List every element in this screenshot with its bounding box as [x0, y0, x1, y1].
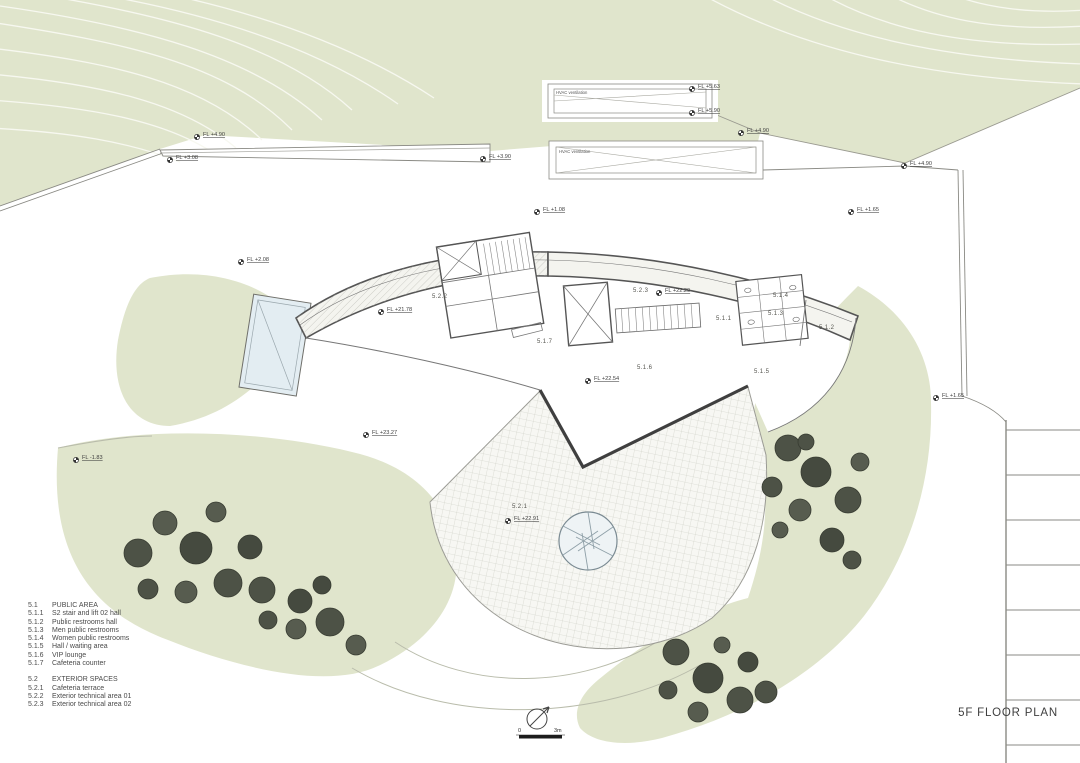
- legend-item: 5.2.2Exterior technical area 01: [28, 693, 131, 701]
- svg-text:FL +3.08: FL +3.08: [176, 155, 198, 161]
- svg-text:FL +2.08: FL +2.08: [247, 257, 269, 263]
- north-arrow-icon: [527, 707, 549, 729]
- scale-bar: 0 3m: [516, 728, 565, 739]
- room-label: 5.1.6: [637, 365, 653, 371]
- level-marker: FL +23.27: [363, 430, 397, 438]
- legend-item: 5.1.7Cafeteria counter: [28, 660, 131, 668]
- svg-text:FL +4.90: FL +4.90: [203, 132, 225, 138]
- svg-text:FL +21.78: FL +21.78: [387, 307, 412, 313]
- svg-text:FL -1.83: FL -1.83: [82, 455, 103, 461]
- legend-item: 5.2.3Exterior technical area 02: [28, 701, 131, 709]
- svg-text:FL +4.90: FL +4.90: [747, 128, 769, 134]
- svg-text:FL +23.27: FL +23.27: [372, 430, 397, 436]
- room-label: 5.2.1: [512, 504, 528, 510]
- legend-item: 5.1.5Hall / waiting area: [28, 643, 131, 651]
- svg-text:FL +3.90: FL +3.90: [489, 154, 511, 160]
- stair-core-block: [436, 232, 543, 338]
- hvac-box-2: HVAC ventilation: [549, 141, 763, 179]
- room-label: 5.1.3: [768, 311, 784, 317]
- hvac-label-1: HVAC ventilation: [556, 90, 588, 95]
- svg-text:FL +1.08: FL +1.08: [543, 207, 565, 213]
- svg-text:FL +22.29: FL +22.29: [665, 288, 690, 294]
- floor-plan-drawing: HVAC ventilation HVAC ventilation: [0, 0, 1080, 763]
- legend-item: 5.2.1Cafeteria terrace: [28, 685, 131, 693]
- east-lift-block: [563, 282, 612, 346]
- ramp-wedge: [160, 144, 490, 162]
- legend-item: 5.1.6VIP lounge: [28, 652, 131, 660]
- svg-text:FL +5.63: FL +5.63: [698, 84, 720, 90]
- scale-zero-label: 0: [518, 728, 521, 734]
- level-marker: FL +2.08: [238, 257, 269, 265]
- level-marker: FL +1.65: [848, 207, 879, 215]
- level-marker: FL +1.08: [534, 207, 565, 215]
- room-label: 5.2.3: [633, 288, 649, 294]
- svg-text:FL +4.90: FL +4.90: [910, 161, 932, 167]
- svg-text:FL +1.65: FL +1.65: [857, 207, 879, 213]
- room-label: 5.1.1: [716, 316, 732, 322]
- level-marker: FL +1.65: [933, 393, 964, 401]
- legend-item: 5.1.1S2 stair and lift 02 hall: [28, 610, 131, 618]
- terrace-skylight-oculus: [559, 512, 617, 570]
- room-label: 5.1.5: [754, 369, 770, 375]
- legend-section-header: 5.1PUBLIC AREA: [28, 602, 131, 610]
- svg-text:FL +1.65: FL +1.65: [942, 393, 964, 399]
- legend-item: 5.1.4Women public restrooms: [28, 635, 131, 643]
- legend: 5.1PUBLIC AREA 5.1.1S2 stair and lift 02…: [28, 602, 131, 710]
- room-label: 5.1.2: [819, 325, 835, 331]
- legend-section-header: 5.2EXTERIOR SPACES: [28, 676, 131, 684]
- svg-text:FL +22.91: FL +22.91: [514, 516, 539, 522]
- room-label: 5.1.7: [537, 339, 553, 345]
- legend-item: 5.1.2Public restrooms hall: [28, 619, 131, 627]
- svg-text:FL +5.90: FL +5.90: [698, 108, 720, 114]
- room-label: 5.1.4: [773, 293, 789, 299]
- restroom-block: [736, 275, 808, 346]
- svg-text:FL +22.54: FL +22.54: [594, 376, 619, 382]
- room-label: 5.2.2: [432, 294, 448, 300]
- floor-plan-canvas: HVAC ventilation HVAC ventilation: [0, 0, 1080, 763]
- legend-item: 5.1.3Men public restrooms: [28, 627, 131, 635]
- scale-max-label: 3m: [554, 728, 562, 734]
- drawing-title: 5F FLOOR PLAN: [958, 707, 1058, 719]
- hvac-label-2: HVAC ventilation: [559, 149, 591, 154]
